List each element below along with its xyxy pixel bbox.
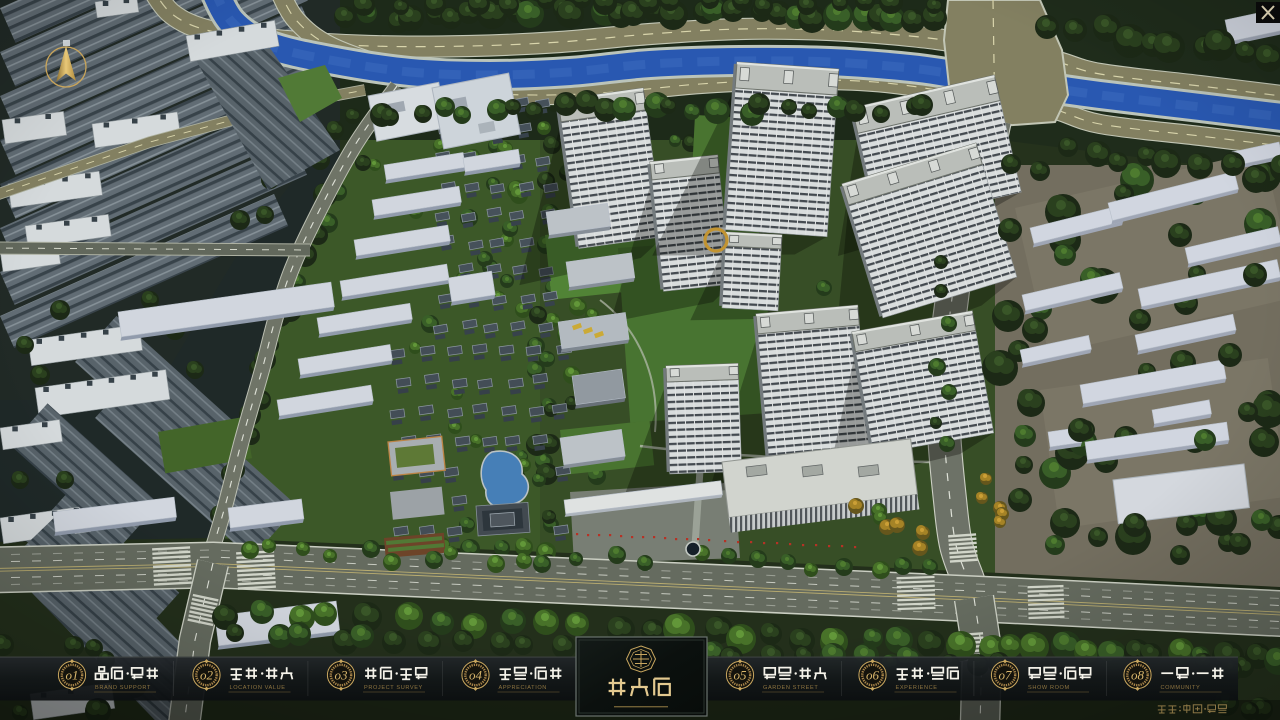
svg-text:LOCATION VALUE: LOCATION VALUE [230, 685, 286, 691]
svg-text:SHOW ROOM: SHOW ROOM [1028, 685, 1070, 691]
svg-text:EXPERIENCE: EXPERIENCE [896, 685, 938, 691]
svg-text:o2: o2 [200, 668, 214, 683]
svg-text:PROJECT SURVEY: PROJECT SURVEY [364, 685, 423, 691]
svg-text:o4: o4 [469, 668, 483, 683]
svg-text:o6: o6 [866, 668, 880, 683]
svg-text:o8: o8 [1131, 668, 1145, 683]
svg-text:COMMUNITY: COMMUNITY [1161, 685, 1201, 691]
svg-text:BRAND SUPPORT: BRAND SUPPORT [95, 685, 151, 691]
svg-text:o5: o5 [734, 668, 748, 683]
svg-text:o7: o7 [999, 668, 1013, 683]
svg-text:o1: o1 [66, 668, 79, 683]
svg-text:APPRECIATION: APPRECIATION [499, 685, 547, 691]
svg-text:o3: o3 [335, 668, 349, 683]
svg-text:GARDEN STREET: GARDEN STREET [763, 685, 818, 691]
